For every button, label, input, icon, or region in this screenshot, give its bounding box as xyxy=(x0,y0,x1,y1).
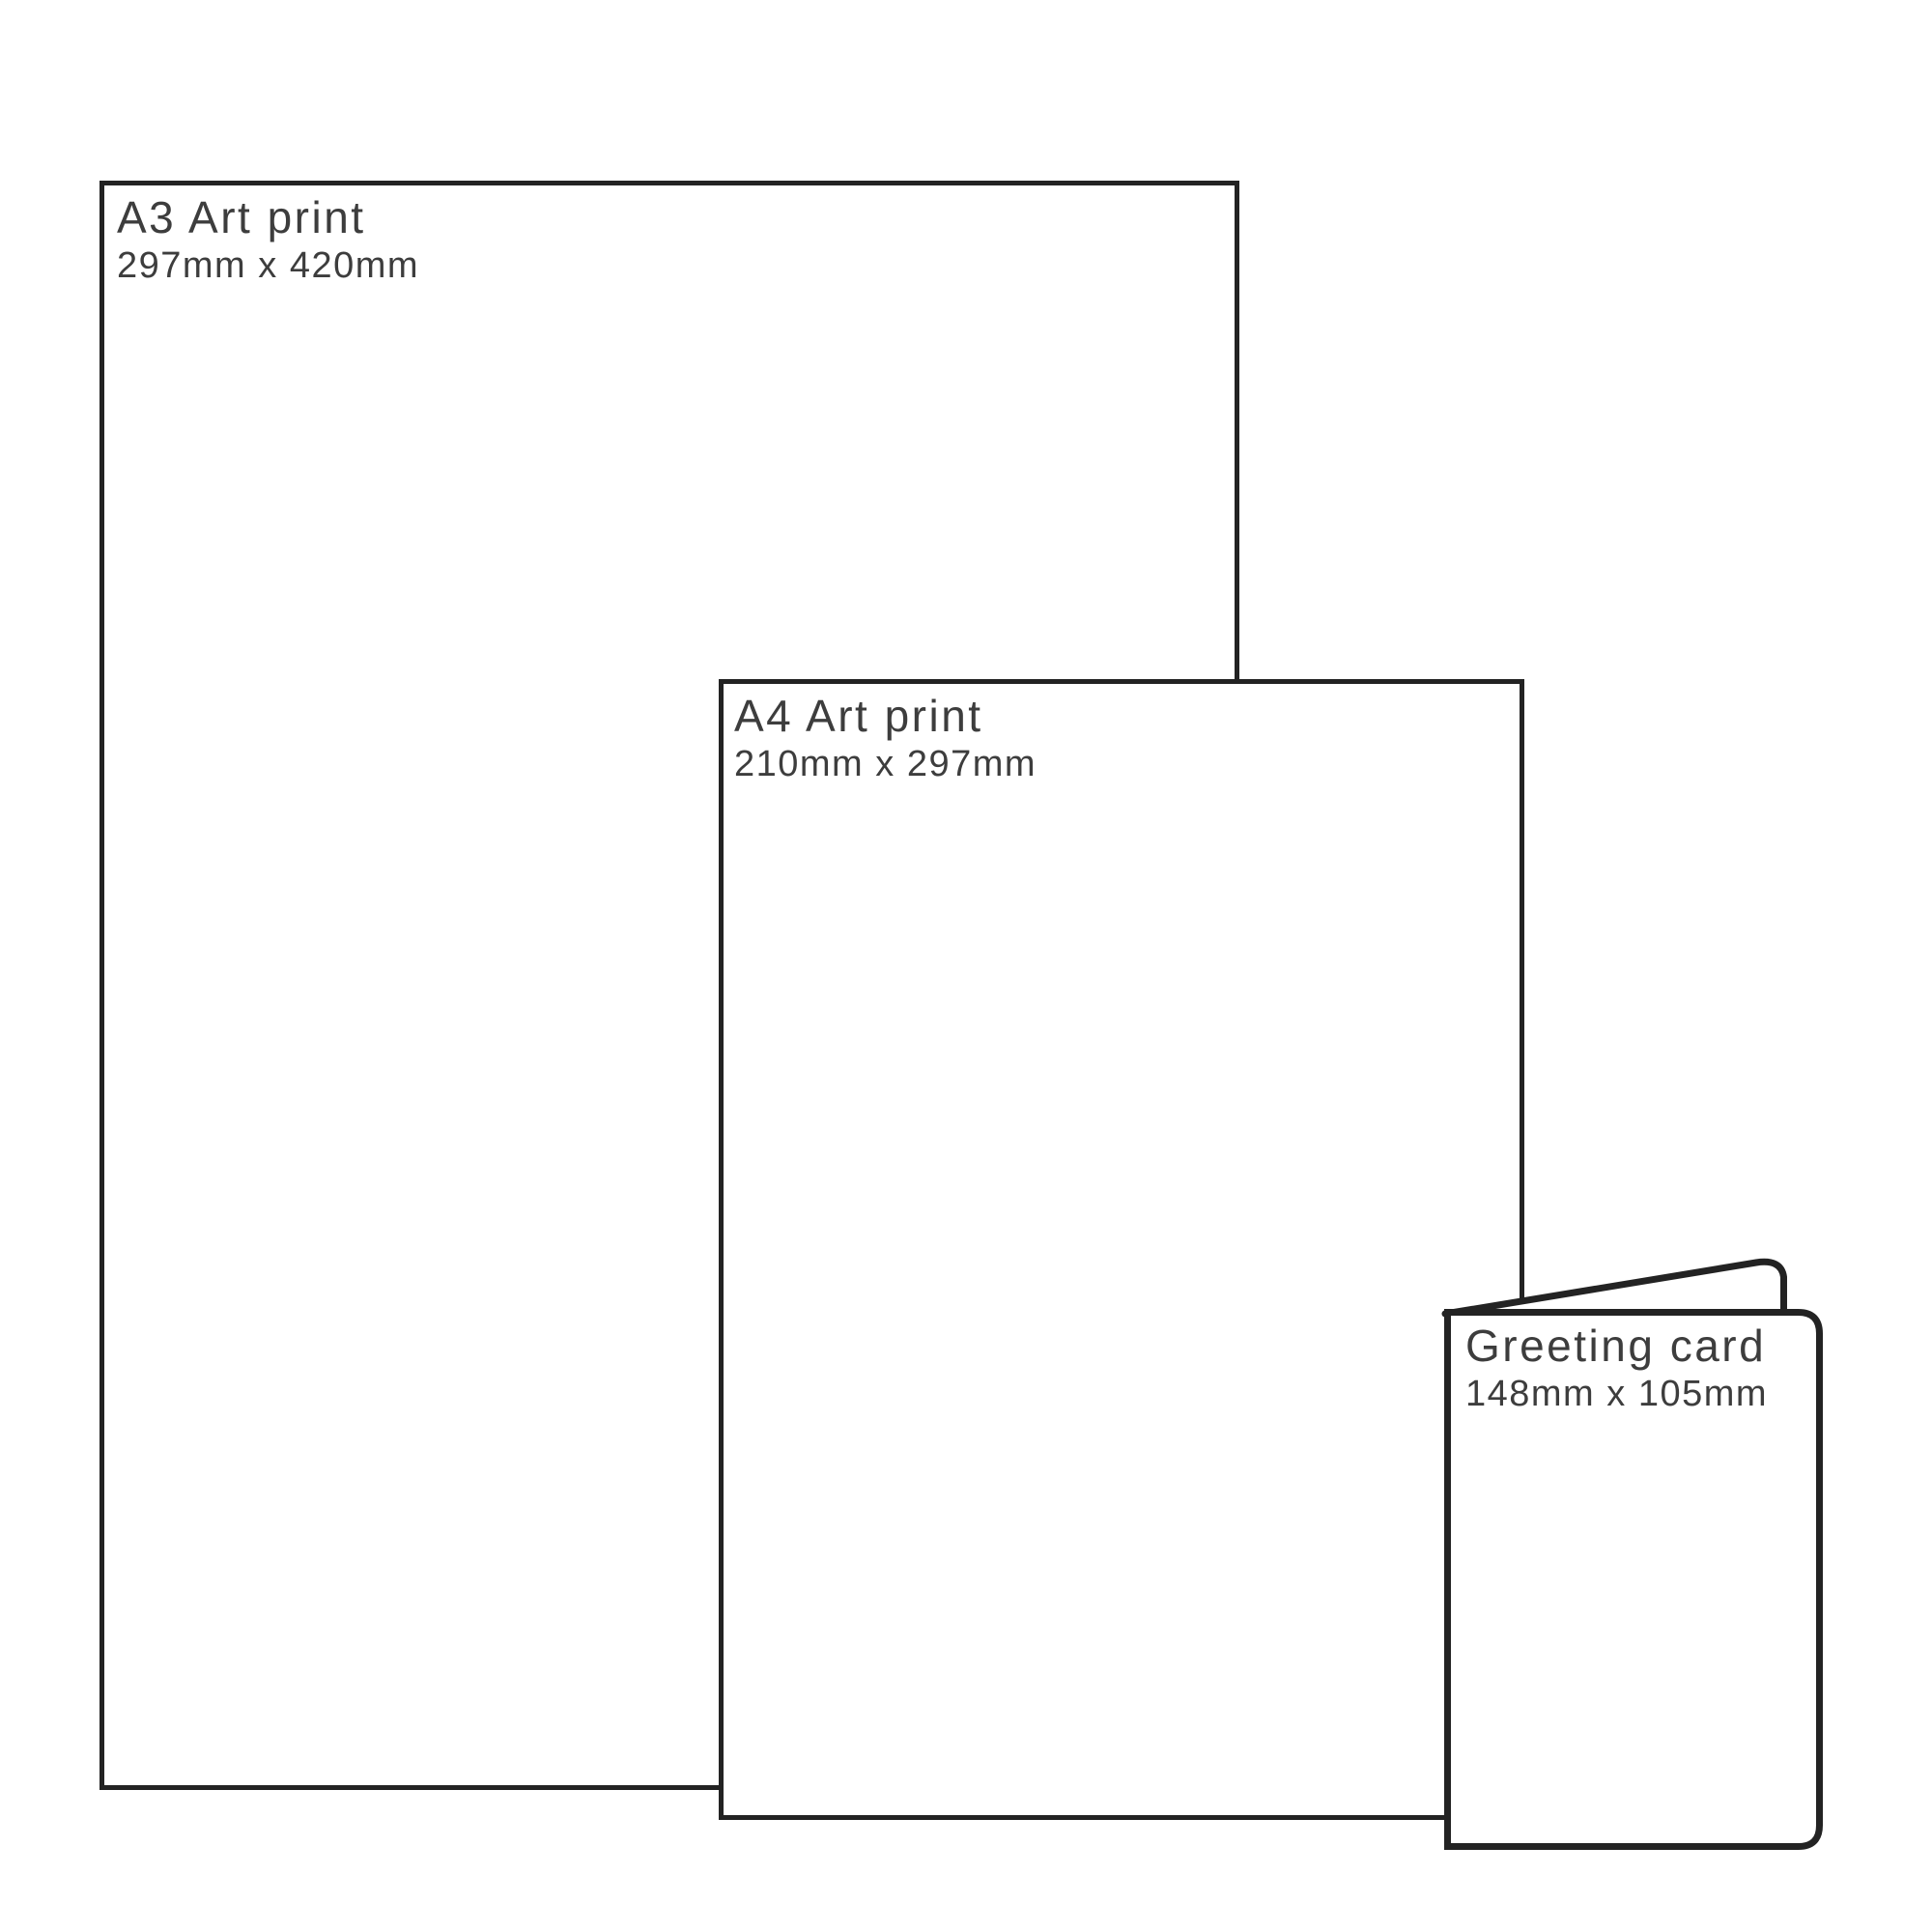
a4-print-title: A4 Art print xyxy=(734,690,1037,742)
diagram-canvas xyxy=(0,0,1932,1932)
a4-print-dimensions: 210mm x 297mm xyxy=(734,742,1037,786)
greeting-card-label: Greeting card 148mm x 105mm xyxy=(1465,1320,1768,1416)
a3-print-title: A3 Art print xyxy=(117,191,419,243)
a3-print-label: A3 Art print 297mm x 420mm xyxy=(117,191,419,288)
a4-print-outline xyxy=(722,682,1522,1818)
a4-print-label: A4 Art print 210mm x 297mm xyxy=(734,690,1037,786)
greeting-card-title: Greeting card xyxy=(1465,1320,1768,1372)
a3-print-dimensions: 297mm x 420mm xyxy=(117,243,419,288)
greeting-card-dimensions: 148mm x 105mm xyxy=(1465,1372,1768,1416)
size-comparison-diagram: A3 Art print 297mm x 420mm A4 Art print … xyxy=(0,0,1932,1932)
